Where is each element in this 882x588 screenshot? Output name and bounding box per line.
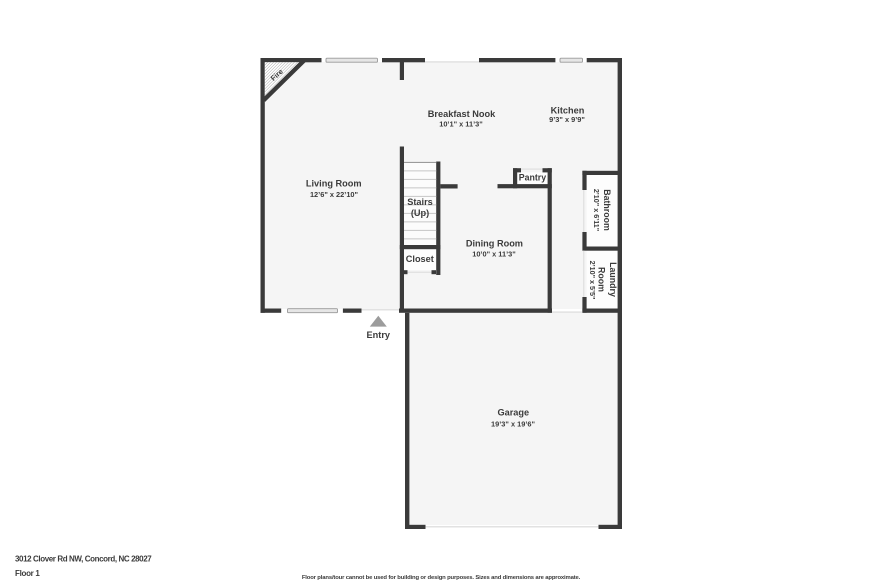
- svg-text:12’6" x 22’10": 12’6" x 22’10": [310, 190, 359, 199]
- svg-text:Living Room: Living Room: [306, 179, 362, 189]
- svg-text:Laundry: Laundry: [608, 262, 618, 297]
- svg-text:10’1" x 11’3": 10’1" x 11’3": [439, 120, 483, 129]
- svg-text:Bathroom: Bathroom: [602, 189, 612, 231]
- svg-text:10’0" x 11’3": 10’0" x 11’3": [472, 250, 516, 259]
- svg-text:Dining Room: Dining Room: [466, 239, 523, 249]
- svg-text:Garage: Garage: [497, 408, 529, 418]
- svg-text:Entry: Entry: [367, 330, 391, 340]
- svg-text:2’10" x 5’5": 2’10" x 5’5": [588, 261, 597, 300]
- svg-text:Stairs: Stairs: [407, 197, 433, 207]
- svg-text:3012 Clover Rd NW, Concord, NC: 3012 Clover Rd NW, Concord, NC 28027: [15, 554, 152, 563]
- svg-text:Kitchen: Kitchen: [551, 106, 585, 116]
- svg-text:Floor plans/tour cannot be use: Floor plans/tour cannot be used for buil…: [302, 575, 581, 581]
- svg-text:Closet: Closet: [406, 254, 434, 264]
- svg-text:2’10" x 6’11": 2’10" x 6’11": [592, 189, 601, 231]
- svg-text:Breakfast Nook: Breakfast Nook: [428, 109, 496, 119]
- svg-text:(Up): (Up): [411, 208, 429, 218]
- svg-text:19’3" x 19’6": 19’3" x 19’6": [491, 419, 535, 428]
- svg-text:9’3" x 9’9": 9’3" x 9’9": [549, 115, 585, 124]
- svg-text:Room: Room: [597, 267, 607, 292]
- svg-text:Pantry: Pantry: [519, 173, 546, 183]
- svg-text:Floor 1: Floor 1: [15, 569, 40, 578]
